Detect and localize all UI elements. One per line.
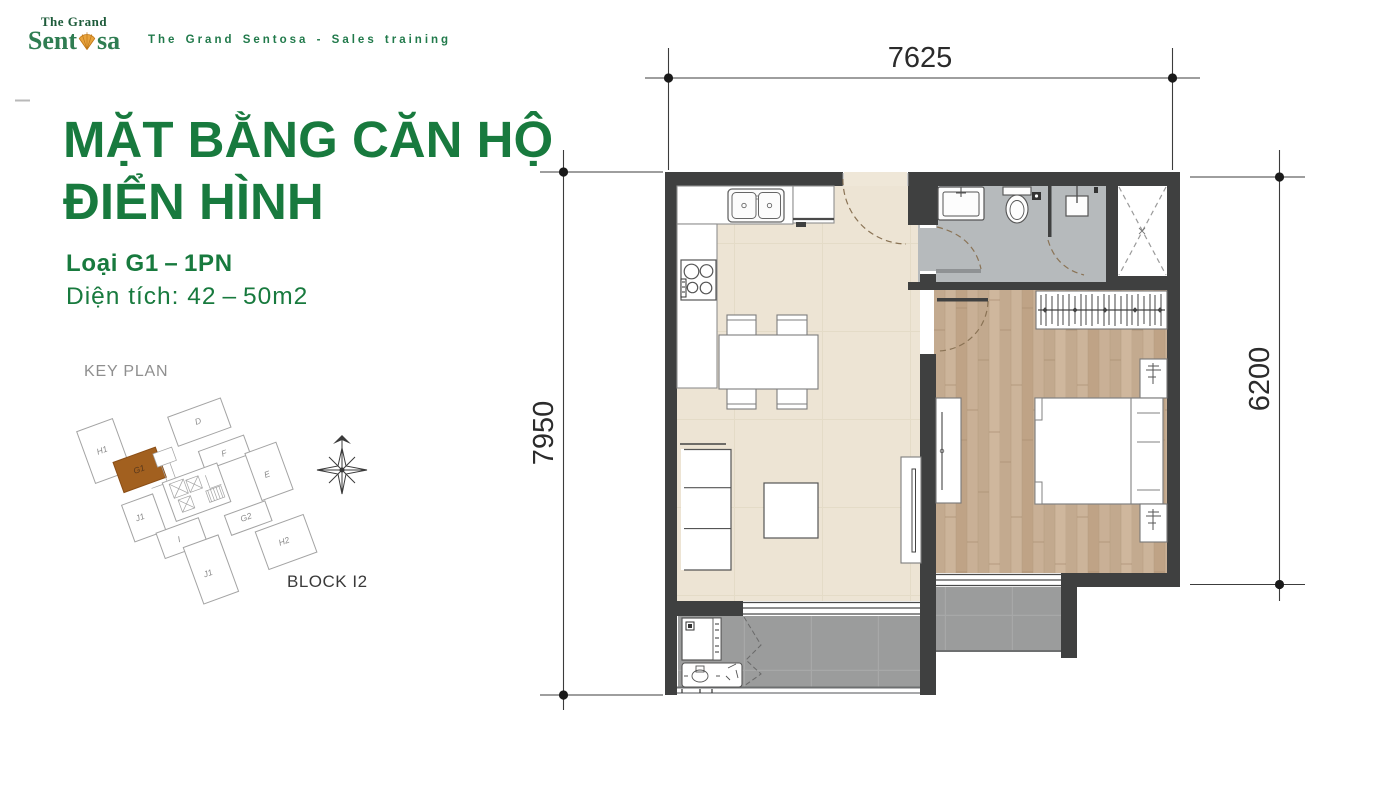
svg-text:7625: 7625 [888,42,953,74]
svg-text:6200: 6200 [1244,347,1276,412]
svg-text:7950: 7950 [528,401,560,466]
